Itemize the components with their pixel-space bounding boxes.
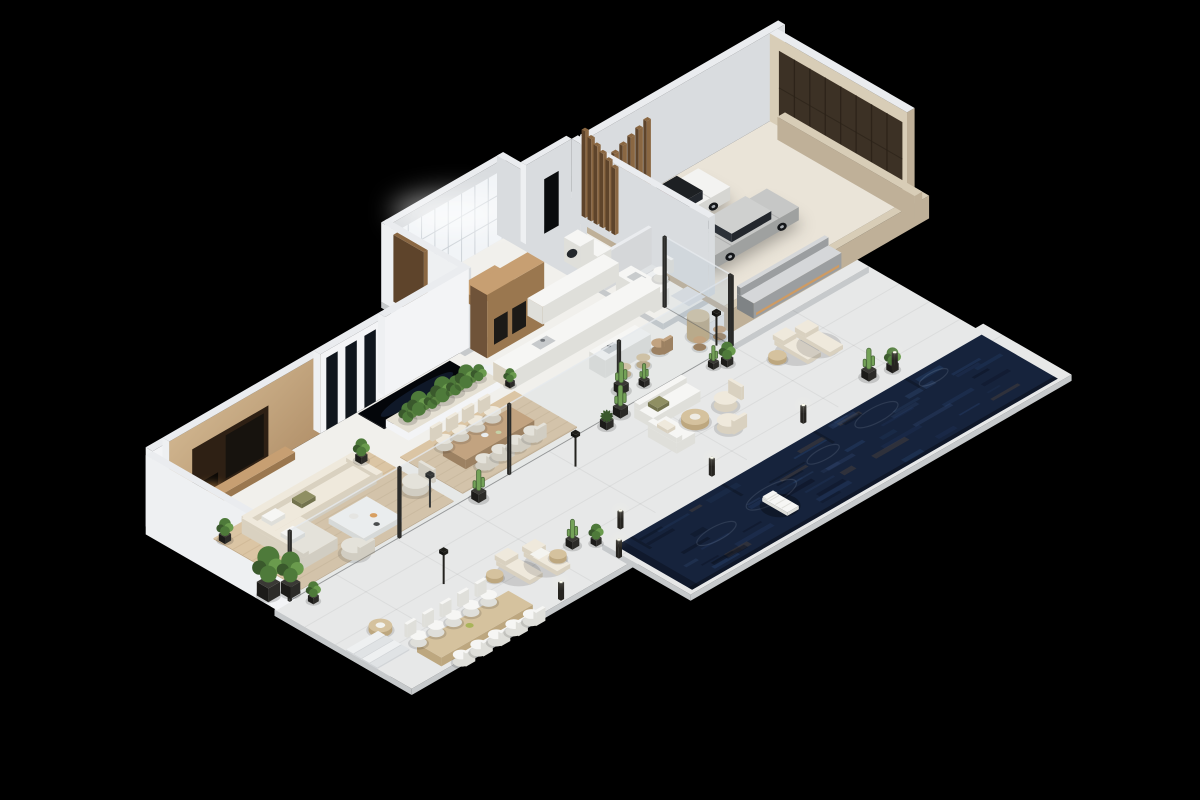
table-tray — [690, 414, 701, 420]
side-table — [548, 549, 569, 564]
villa-isometric-render — [0, 0, 1200, 800]
closet-ceiling-light-2 — [419, 208, 487, 232]
window-slit — [364, 329, 375, 408]
floorplan-canvas — [0, 0, 1200, 800]
island-faucet — [540, 339, 545, 342]
window-slit — [326, 351, 337, 430]
side-table — [484, 569, 505, 584]
magazine — [376, 622, 386, 628]
fruit-bowl — [465, 623, 473, 628]
window-slit — [345, 340, 356, 419]
laundry-doorway — [544, 171, 559, 234]
